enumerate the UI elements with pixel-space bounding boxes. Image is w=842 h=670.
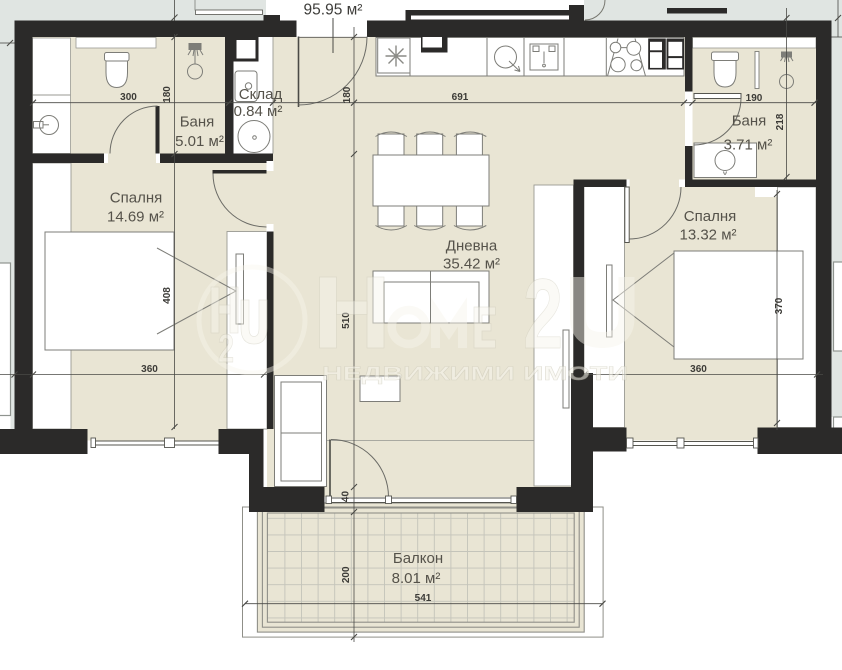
svg-text:40: 40 <box>341 491 352 503</box>
svg-text:2: 2 <box>218 326 234 371</box>
svg-text:300: 300 <box>120 92 137 103</box>
svg-text:190: 190 <box>746 93 763 104</box>
svg-text:0.84 м²: 0.84 м² <box>234 103 283 120</box>
svg-text:35.42 м²: 35.42 м² <box>443 256 500 273</box>
svg-text:Спалня: Спалня <box>110 190 162 207</box>
svg-text:5.01 м²: 5.01 м² <box>175 133 224 150</box>
svg-text:13.32 м²: 13.32 м² <box>679 227 736 244</box>
svg-text:2: 2 <box>523 260 563 370</box>
svg-text:НЕДВИЖИМИ ИМОТИ: НЕДВИЖИМИ ИМОТИ <box>322 364 628 385</box>
svg-text:200: 200 <box>341 566 352 583</box>
svg-text:Балкон: Балкон <box>393 550 443 567</box>
svg-text:95.95 м²: 95.95 м² <box>304 2 363 19</box>
svg-text:218: 218 <box>775 113 786 130</box>
svg-text:8.01 м²: 8.01 м² <box>392 570 441 587</box>
svg-text:180: 180 <box>162 86 173 103</box>
svg-text:Склад: Склад <box>239 86 283 103</box>
svg-text:Баня: Баня <box>732 113 767 130</box>
svg-text:Спалня: Спалня <box>684 208 736 225</box>
svg-text:691: 691 <box>452 92 469 103</box>
svg-text:Дневна: Дневна <box>446 238 498 255</box>
svg-text:360: 360 <box>141 364 158 375</box>
svg-text:14.69 м²: 14.69 м² <box>107 209 164 226</box>
svg-text:Баня: Баня <box>180 114 215 131</box>
svg-text:370: 370 <box>774 297 785 314</box>
svg-text:180: 180 <box>342 86 353 103</box>
svg-text:3.71 м²: 3.71 м² <box>724 137 773 154</box>
svg-text:360: 360 <box>690 364 707 375</box>
svg-text:541: 541 <box>415 593 432 604</box>
svg-text:408: 408 <box>162 287 173 304</box>
